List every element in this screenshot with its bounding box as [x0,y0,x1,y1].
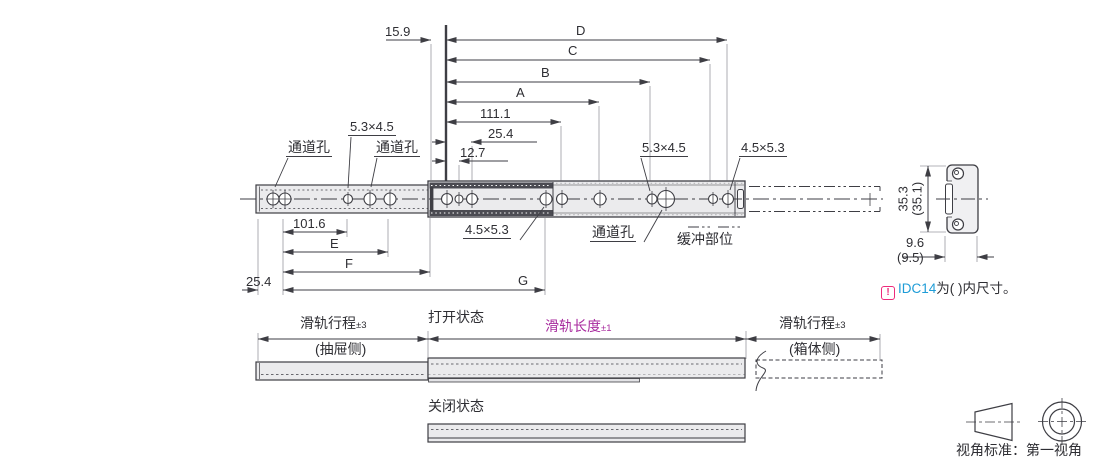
section-height-paren-dim: (35.1) [911,171,925,226]
projection-standard-label: 视角标准：第一视角 [956,443,1082,458]
technical-drawing-page: 15.9 D C B A 111.1 25.4 12.7 通道孔 5.3×4.5… [0,0,1110,465]
dim-G: G [518,274,528,288]
channel-hole-label-1: 通道孔 [286,140,332,157]
closed-state-label: 关闭状态 [428,399,484,414]
top-dimensions [386,25,727,181]
drawing-canvas [0,0,1110,465]
section-height-dim: 35.3 [897,176,911,221]
open-inner-lip [429,379,640,383]
dim-101-6: 101.6 [293,217,326,231]
dim-left-25-4: 25.4 [246,275,271,289]
dim-E: E [330,237,339,251]
section-width-paren-dim: (9.5) [897,251,924,265]
open-main-member [428,358,745,378]
dim-25-4: 25.4 [488,127,513,141]
open-state-diagram [256,331,882,391]
alert-icon: ! [881,286,895,300]
dim-C: C [568,44,577,58]
dim-F: F [345,257,353,271]
rail-length-label: 滑轨长度±1 [545,319,612,334]
buffer-zone-label: 缓冲部位 [677,232,733,247]
slot-5-3x4-5-label-2: 5.3×4.5 [640,141,688,157]
dim-D: D [576,24,585,38]
projection-symbol [966,398,1086,445]
extension-lines-top [431,44,727,181]
main-rail-view [240,181,883,217]
open-state-label: 打开状态 [428,310,484,325]
cabinet-side-label: (箱体侧) [789,342,840,357]
section-width-dim: 9.6 [906,236,924,250]
dimension-note: !IDC14为( )内尺寸。 [881,282,1017,300]
dim-12-7: 12.7 [460,146,485,160]
travel-label-drawer: 滑轨行程±3 [300,316,367,331]
open-drawer-member [256,362,428,380]
note-code-link[interactable]: IDC14 [898,281,936,296]
dim-111-1: 111.1 [480,107,511,121]
drawer-side-label: (抽屉侧) [315,342,366,357]
dimension-lines-bottom [242,232,545,290]
slot-4-5x5-3-label-top: 4.5×5.3 [739,141,787,157]
dim-B: B [541,66,550,80]
closed-state-diagram [428,424,745,442]
slot-5-3x4-5-label-1: 5.3×4.5 [348,120,396,136]
channel-hole-label-3: 通道孔 [590,225,636,242]
channel-hole-label-2: 通道孔 [374,140,420,157]
dim-A: A [516,86,525,100]
cabinet-travel-phantom [756,360,882,378]
dim-offset-15-9: 15.9 [385,25,410,39]
note-text: 为( )内尺寸。 [936,281,1016,296]
closed-rail [428,424,745,442]
slot-4-5x5-3-label-bottom: 4.5×5.3 [463,223,511,239]
travel-label-cabinet: 滑轨行程±3 [779,316,846,331]
